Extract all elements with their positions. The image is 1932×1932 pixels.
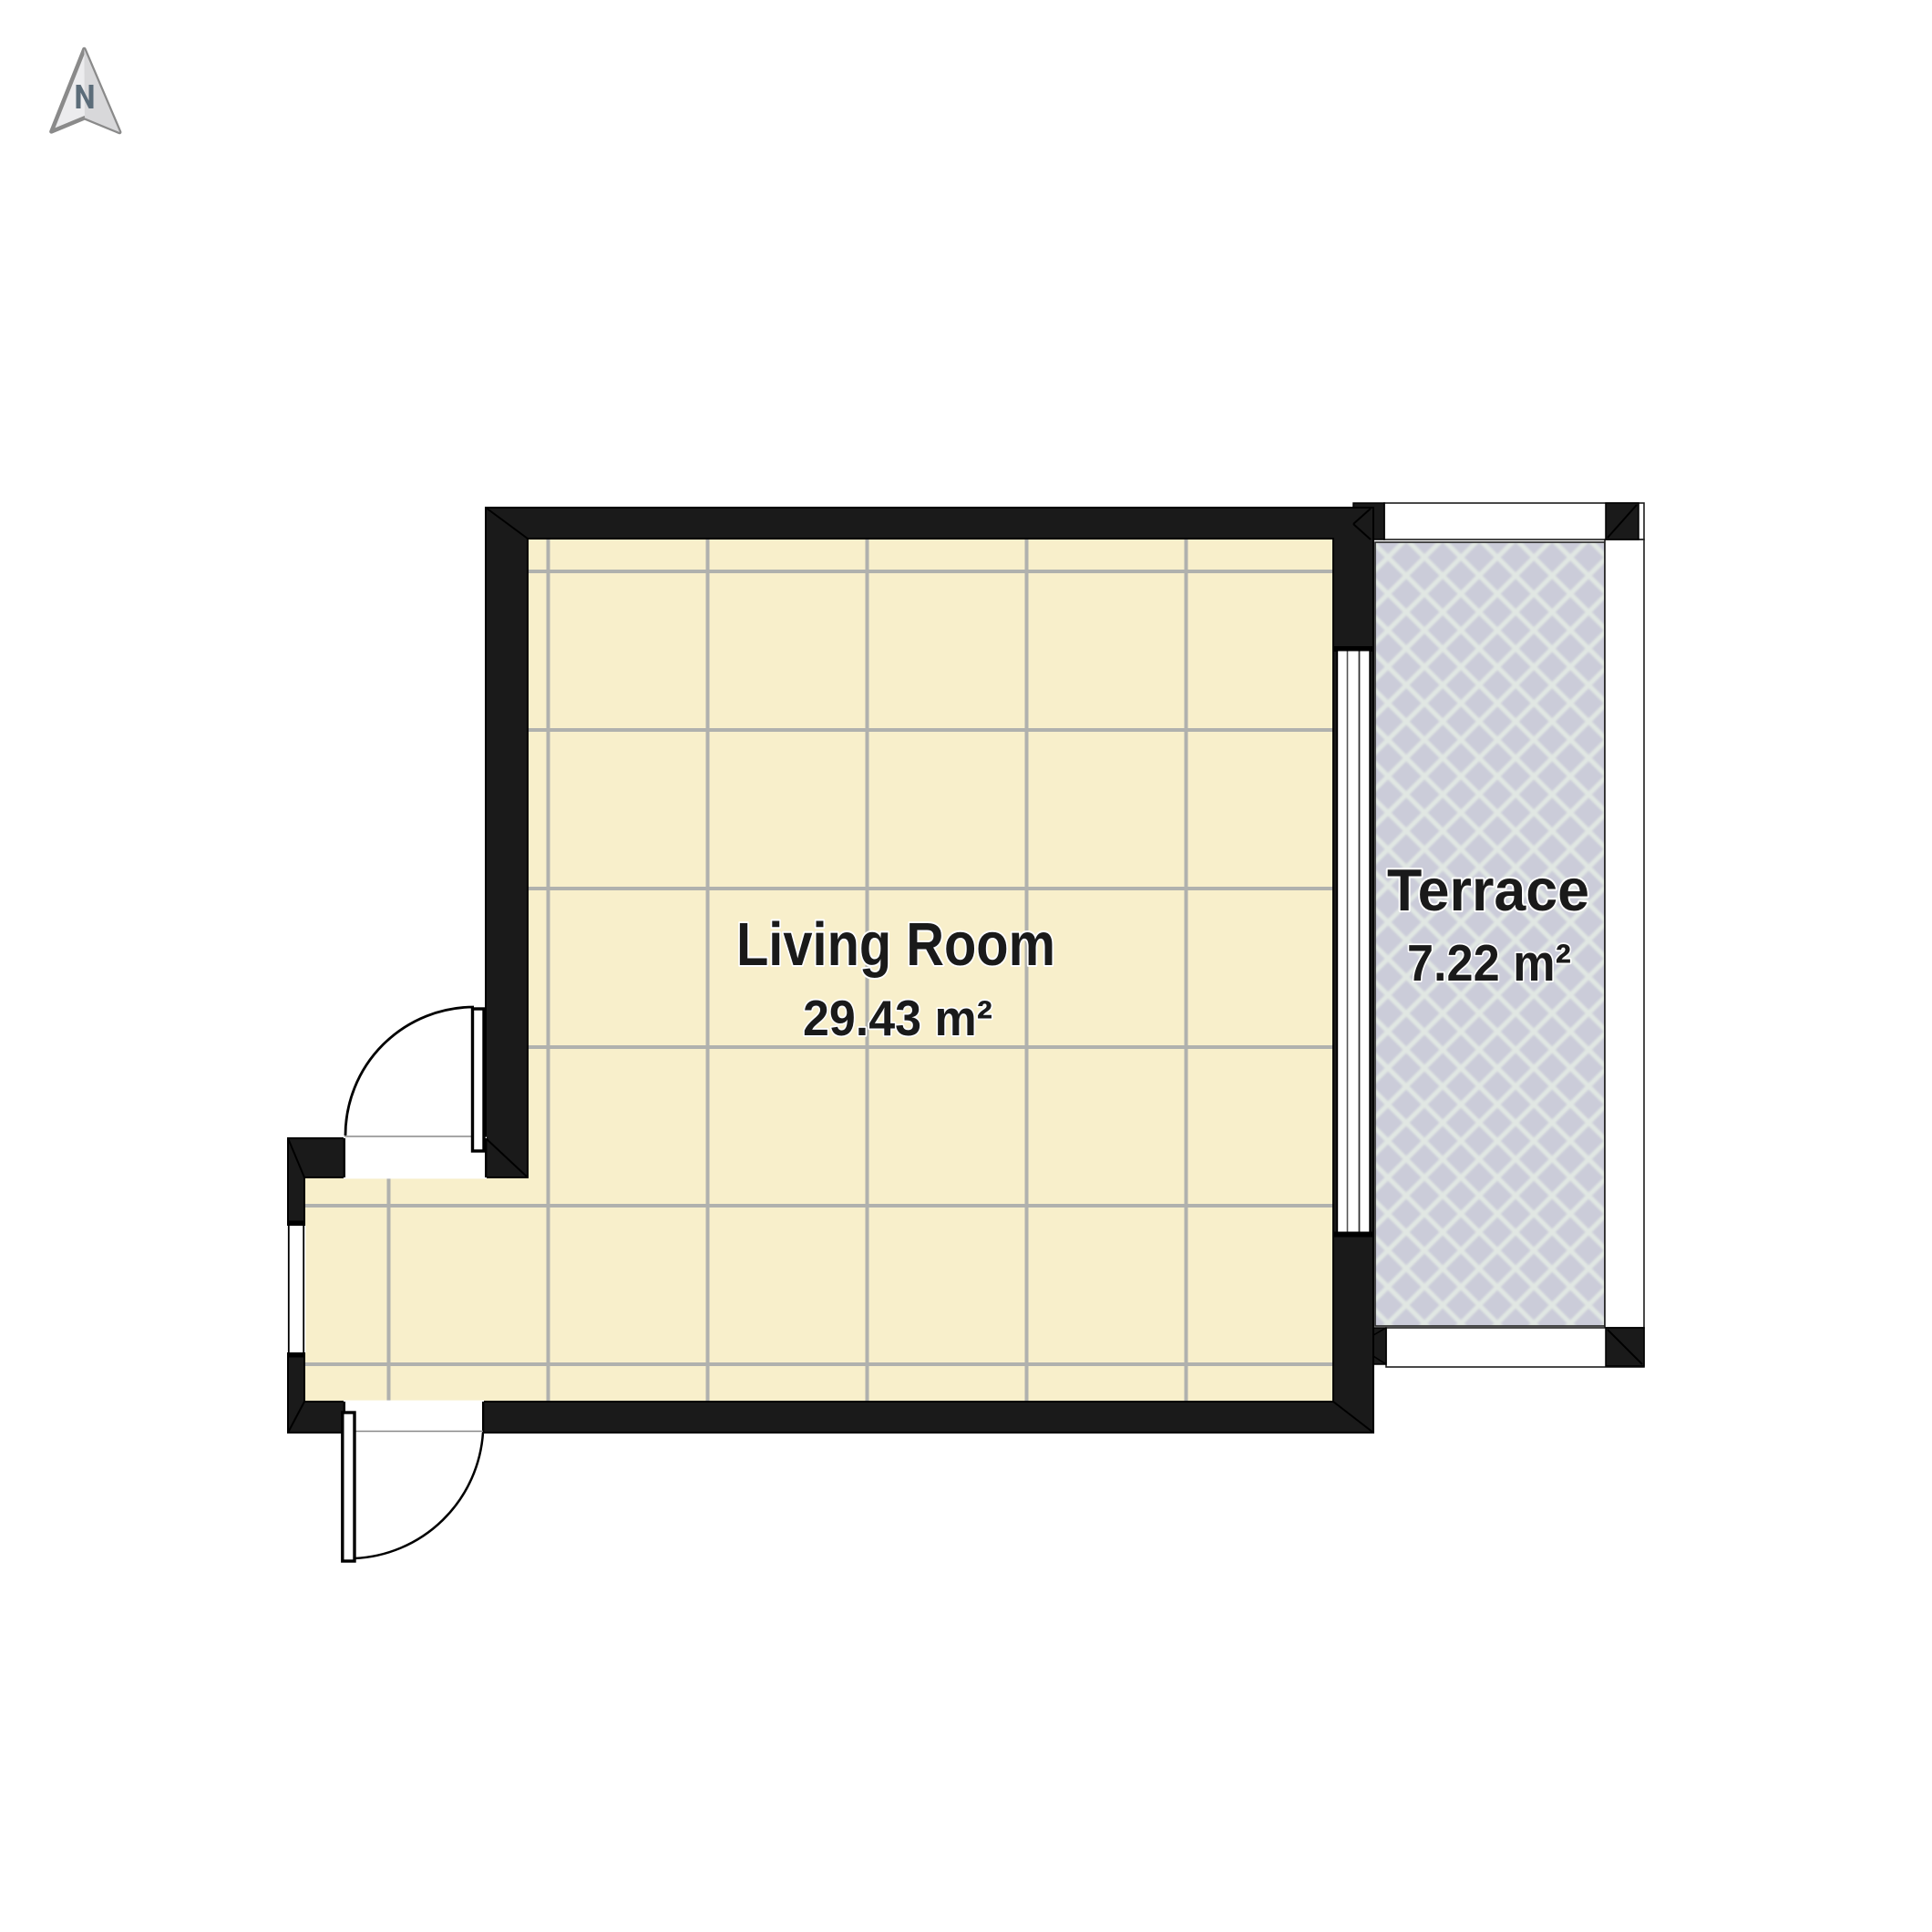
svg-text:29.43 m²: 29.43 m² <box>803 990 992 1046</box>
svg-text:Terrace: Terrace <box>1387 857 1589 923</box>
svg-text:7.22 m²: 7.22 m² <box>1407 934 1571 992</box>
svg-text:Living Room: Living Room <box>736 910 1055 979</box>
